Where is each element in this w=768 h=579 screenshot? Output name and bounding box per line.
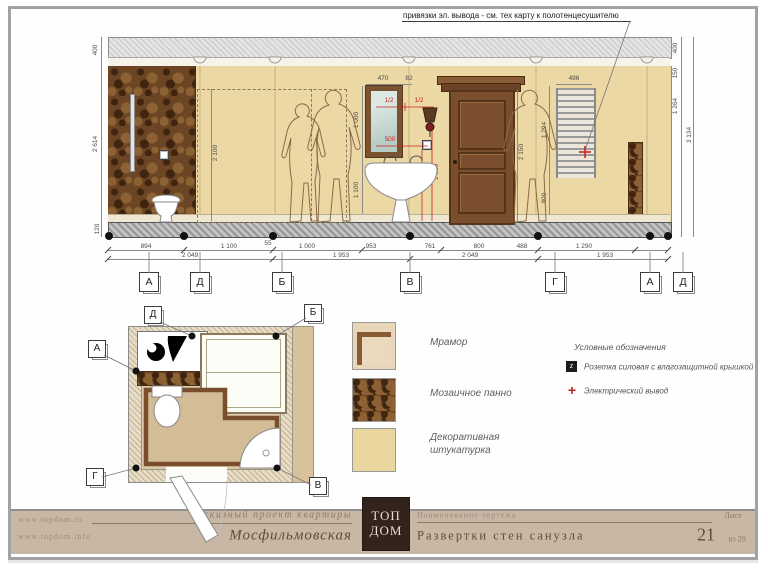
dim-label: 1 000 — [354, 112, 361, 128]
dim-label: 800 — [542, 193, 549, 204]
dim-label-red: 1 200 — [413, 180, 420, 196]
dim-label: 2 100 — [213, 145, 220, 161]
door — [449, 90, 515, 225]
material-label: Декоративная штукатурка — [430, 432, 512, 457]
section-marker: А — [640, 272, 660, 292]
dim-label: 400 — [93, 45, 100, 56]
title-divider — [92, 523, 352, 524]
chain-dim: 55 — [264, 241, 271, 248]
dim-label-red: 1 550 — [434, 164, 441, 180]
chain-dim: 2 049 — [462, 253, 478, 260]
chain-dim: 1 100 — [221, 244, 237, 251]
chain-dim: 761 — [425, 244, 436, 251]
sheet-label: Лист — [724, 510, 742, 520]
chain-dim: 1 953 — [333, 253, 349, 260]
dim-line — [556, 84, 592, 85]
floor-hatch-band — [108, 222, 672, 238]
annotation-underline — [402, 21, 631, 22]
plan-bathtub — [200, 333, 287, 414]
drawing-sheet: привязки эл. вывода - см. тех карту к по… — [0, 0, 768, 579]
dim-line — [549, 86, 550, 214]
chain-dim: 2 049 — [182, 253, 198, 260]
plan-marker: А — [88, 340, 106, 358]
dim-line — [101, 37, 102, 237]
dim-label: 2 150 — [519, 144, 526, 160]
section-marker: Б — [272, 272, 292, 292]
towel-radiator — [556, 88, 596, 178]
plan-mosaic-strip — [137, 371, 208, 386]
plan-marker: Б — [304, 304, 322, 322]
electrical-outlet-icon: + — [568, 383, 576, 397]
sheet-number: 21 — [697, 525, 715, 546]
website-url: www.topdom.info — [18, 532, 91, 541]
material-label: Мозаичное панно — [430, 388, 512, 401]
power-socket-icon — [159, 150, 169, 160]
socket-legend-icon: z — [566, 361, 577, 372]
chain-dim: 1 290 — [576, 244, 592, 251]
swatch-plaster — [352, 428, 396, 472]
dim-label: 82 — [405, 76, 412, 83]
grab-bar — [130, 94, 135, 172]
plan-vanity — [137, 331, 208, 373]
website-url: www.topdom.ru — [18, 515, 83, 524]
chain-dim: 894 — [141, 244, 152, 251]
drawing-title: Развертки стен санузла — [417, 529, 585, 544]
sheet-total: из 29 — [728, 535, 745, 544]
plan-marker: Д — [144, 306, 162, 324]
chain-dim: 800 — [474, 244, 485, 251]
dashed-divider — [311, 89, 313, 221]
logo-line1: ТОП — [363, 509, 409, 524]
plan-marker: В — [309, 477, 327, 495]
outlet-legend-label: Электрический вывод — [584, 387, 668, 396]
dim-label: 1 294 — [542, 122, 549, 138]
plan-outer-wall-band — [292, 326, 314, 483]
material-label: Мрамор — [430, 337, 467, 350]
symbols-legend-title: Условные обозначения — [574, 342, 665, 352]
annotation-note: привязки эл. вывода - см. тех карту к по… — [403, 11, 619, 20]
dim-label-red: 1/2 — [384, 98, 393, 105]
swatch-mosaic — [352, 378, 396, 422]
dim-line — [681, 37, 682, 237]
ceiling-hatch-band — [108, 37, 672, 59]
dim-label: 496 — [569, 76, 580, 83]
chain-dim: 953 — [366, 244, 377, 251]
dim-label: 470 — [378, 76, 389, 83]
plan-door-opening — [166, 467, 227, 482]
chain-dim: 1 953 — [597, 253, 613, 260]
chain-dim: 488 — [517, 244, 528, 251]
dim-label: 150 — [673, 68, 680, 79]
plan-marker: Г — [86, 468, 104, 486]
socket-legend-label: Розетка силовая с влагозащитной крышкой — [584, 363, 753, 372]
drawing-name-label: Наименование чертежа — [417, 511, 516, 520]
logo-line2: ДОМ — [363, 524, 409, 539]
project-name: Мосфильмовская — [229, 528, 352, 545]
door-handle — [453, 160, 457, 164]
dim-line — [362, 86, 363, 214]
section-marker: Д — [673, 272, 693, 292]
dim-label: 1 264 — [673, 98, 680, 114]
dim-label: 3 134 — [687, 127, 694, 143]
dim-label: 2 614 — [93, 136, 100, 152]
dim-label: 120 — [95, 224, 102, 235]
dim-label: 1 100 — [354, 182, 361, 198]
title-divider — [417, 522, 712, 523]
dim-line — [366, 84, 412, 85]
dashed-zone — [197, 89, 347, 223]
mosaic-strip — [628, 142, 643, 218]
section-marker: В — [400, 272, 420, 292]
section-marker: А — [139, 272, 159, 292]
mosaic-panel-wall — [108, 66, 196, 222]
section-marker: Д — [190, 272, 210, 292]
dim-label-red: 1/2 — [414, 98, 423, 105]
project-type: Эскизный проект квартиры — [196, 510, 352, 521]
chain-dim: 1 000 — [299, 244, 315, 251]
swatch-marble — [352, 322, 396, 370]
topdom-logo: ТОП ДОМ — [362, 497, 410, 551]
section-marker: Г — [545, 272, 565, 292]
dim-label-red: 500 — [385, 137, 396, 144]
dim-label: 400 — [673, 43, 680, 54]
power-socket-icon — [422, 140, 432, 150]
